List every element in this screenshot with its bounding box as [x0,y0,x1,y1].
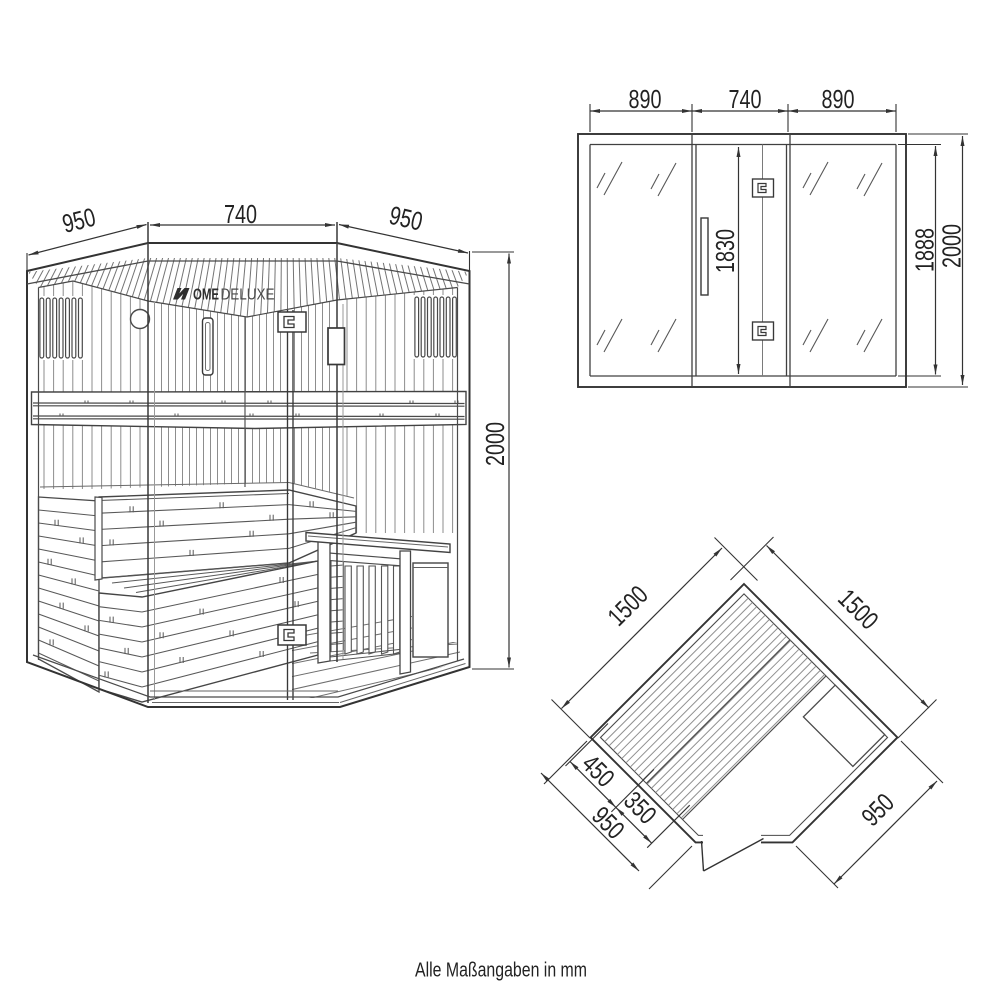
svg-text:740: 740 [224,199,257,229]
svg-text:890: 890 [629,84,662,114]
svg-text:DELUXE: DELUXE [221,287,275,304]
svg-text:890: 890 [822,84,855,114]
svg-text:1830: 1830 [710,229,740,273]
svg-text:740: 740 [729,84,762,114]
svg-text:Alle Maßangaben in mm: Alle Maßangaben in mm [415,959,587,982]
svg-text:OME: OME [193,287,219,304]
svg-text:2000: 2000 [937,224,967,268]
svg-text:1888: 1888 [910,228,940,272]
svg-text:2000: 2000 [480,422,510,466]
